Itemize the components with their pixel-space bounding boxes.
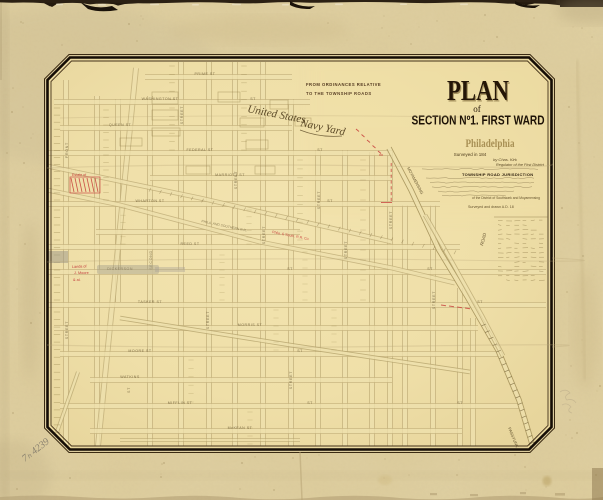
svg-text:STREET: STREET [432, 291, 436, 309]
svg-text:FROM ORDINANCES RELATIVE: FROM ORDINANCES RELATIVE [306, 82, 381, 87]
svg-text:QUEEN ST: QUEEN ST [109, 123, 132, 127]
svg-text:ST: ST [250, 97, 256, 101]
svg-text:MARRIOTT ST: MARRIOTT ST [215, 173, 245, 177]
svg-text:Lands of: Lands of [72, 264, 88, 269]
svg-text:ST: ST [287, 267, 293, 271]
svg-text:J. Moore: J. Moore [74, 271, 89, 275]
svg-text:STREET: STREET [206, 311, 210, 329]
svg-text:WATKINS: WATKINS [120, 375, 140, 379]
svg-text:of the District of Southwark a: of the District of Southwark and Moyamen… [472, 196, 540, 200]
svg-text:STREET: STREET [317, 191, 321, 209]
svg-text:Surveyed in 184: Surveyed in 184 [454, 152, 487, 157]
svg-text:PRIME ST: PRIME ST [195, 72, 216, 76]
svg-text:& al.: & al. [73, 278, 81, 282]
svg-text:REED ST: REED ST [180, 242, 199, 246]
svg-text:ST: ST [317, 148, 323, 152]
svg-text:ST: ST [427, 267, 433, 271]
svg-text:Philadelphia: Philadelphia [466, 138, 515, 150]
svg-text:MIFFLIN ST: MIFFLIN ST [168, 401, 193, 405]
svg-text:STREET: STREET [344, 241, 348, 259]
svg-text:STREET: STREET [262, 226, 266, 244]
svg-text:Estate of: Estate of [72, 173, 86, 177]
svg-text:STREET: STREET [65, 321, 69, 339]
svg-text:WASHINGTON ST: WASHINGTON ST [142, 97, 179, 101]
svg-text:STREET: STREET [389, 211, 393, 229]
svg-text:STREET: STREET [234, 171, 238, 189]
svg-text:FRONT: FRONT [65, 142, 69, 158]
svg-text:ST: ST [327, 199, 333, 203]
svg-text:ST: ST [477, 300, 483, 304]
svg-text:ST: ST [297, 349, 303, 353]
svg-text:WHARTON ST: WHARTON ST [135, 199, 164, 203]
svg-text:MORRIS ST: MORRIS ST [238, 323, 263, 327]
svg-text:STREET: STREET [289, 371, 293, 389]
svg-text:FEDERAL ST: FEDERAL ST [186, 148, 213, 152]
svg-text:TO THE TOWNSHIP ROADS: TO THE TOWNSHIP ROADS [306, 91, 372, 96]
svg-text:of: of [473, 104, 481, 114]
svg-text:Surveyed and drawn A.D. 18: Surveyed and drawn A.D. 18 [468, 205, 514, 209]
svg-text:MOORE ST: MOORE ST [128, 349, 151, 353]
svg-text:by Chas. Kirk: by Chas. Kirk [493, 157, 518, 162]
svg-text:ST: ST [127, 387, 131, 393]
svg-text:ST: ST [457, 401, 463, 405]
svg-text:TASKER ST: TASKER ST [138, 300, 163, 304]
svg-text:TOWNSHIP ROAD JURISDICTION: TOWNSHIP ROAD JURISDICTION [462, 172, 533, 177]
svg-text:ST: ST [307, 401, 313, 405]
svg-text:PLAN: PLAN [447, 76, 509, 107]
svg-text:McKEAN ST: McKEAN ST [228, 426, 253, 430]
svg-text:STREET: STREET [180, 106, 184, 124]
svg-text:SECTION Nº1. FIRST WARD: SECTION Nº1. FIRST WARD [412, 114, 545, 128]
